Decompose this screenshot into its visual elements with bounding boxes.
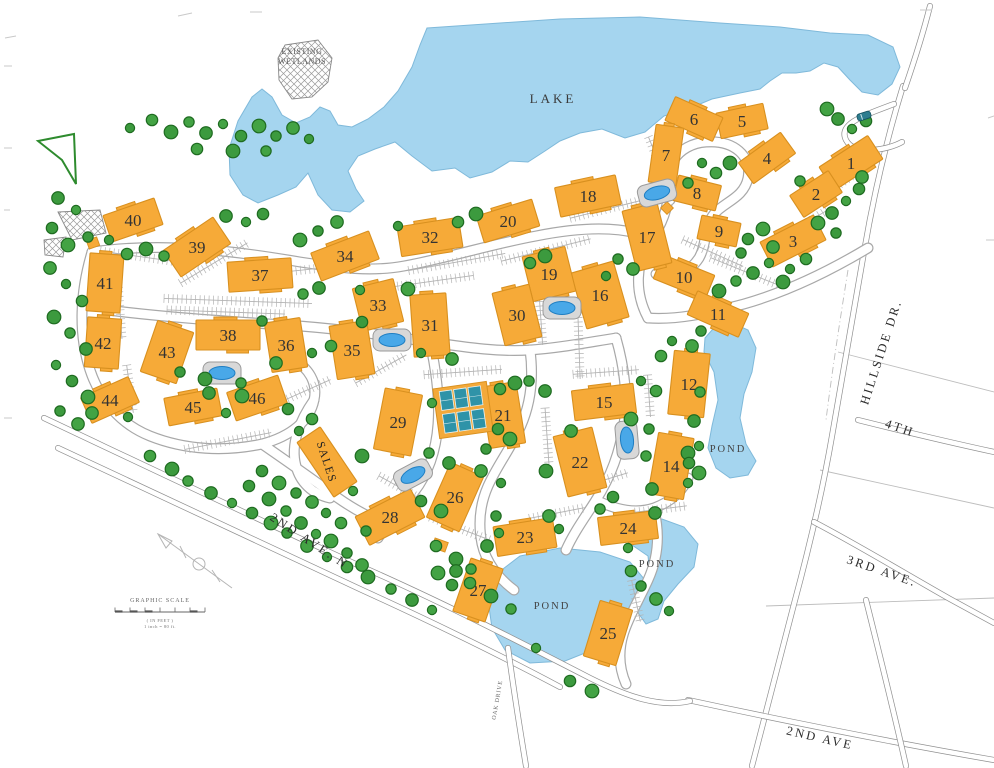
tree-symbol [650, 385, 661, 396]
tree-symbol [355, 449, 369, 463]
parking-stall-line [389, 478, 393, 486]
tree-symbol [539, 385, 552, 398]
building-39-number: 39 [189, 238, 206, 257]
tree-symbol [282, 403, 293, 414]
tree-symbol [820, 102, 834, 116]
tree-symbol [83, 232, 93, 242]
building-42: 42 [84, 314, 122, 372]
parking-stall-line [681, 235, 685, 243]
tree-symbol [356, 559, 369, 572]
parking-stall-line [643, 375, 652, 376]
building-46-number: 46 [249, 389, 266, 408]
building-31-number: 31 [422, 316, 439, 335]
building-20-number: 20 [500, 212, 517, 231]
tree-symbol [261, 146, 271, 156]
pond-label-big: POND [534, 601, 571, 612]
north-arrow-needle [158, 534, 232, 588]
tree-symbol [235, 389, 249, 403]
tree-symbol [494, 528, 503, 537]
parking-stall-line [442, 369, 443, 378]
tree-symbol [361, 526, 371, 536]
tree-symbol [246, 507, 257, 518]
tree-symbol [841, 196, 850, 205]
scan-artifact-mark [178, 13, 192, 16]
boundary-flag-marker [38, 134, 76, 184]
tree-symbol [294, 426, 303, 435]
tree-symbol [624, 412, 638, 426]
swimming-pool [373, 329, 411, 351]
tree-symbol [165, 462, 179, 476]
tree-symbol [262, 492, 276, 506]
parking-stall-line [377, 366, 381, 374]
site-plan-map: 1234567891011121415161718192021222324252… [0, 0, 994, 768]
tree-symbol [694, 441, 703, 450]
building-38-number: 38 [220, 326, 237, 345]
parking-stall-line [577, 369, 578, 378]
parking-stall-line [689, 239, 693, 247]
tree-symbol [811, 216, 825, 230]
parking-stall-line [178, 279, 183, 287]
tree-symbol [623, 543, 632, 552]
parking-stall-line [290, 393, 294, 401]
tree-symbol [306, 496, 319, 509]
tree-symbol [257, 316, 267, 326]
building-18-number: 18 [580, 187, 597, 206]
tree-symbol [667, 336, 676, 345]
tree-symbol [200, 127, 213, 140]
tree-symbol [683, 178, 693, 188]
parking-stall-line [217, 256, 222, 264]
building-33-number: 33 [370, 296, 387, 315]
tree-symbol [241, 217, 250, 226]
parking-stall-line [487, 366, 488, 375]
building-17-number: 17 [639, 228, 657, 247]
parking-stall-line [469, 367, 470, 376]
tree-symbol [686, 340, 699, 353]
tree-symbol [416, 348, 425, 357]
scale-bar-block [190, 610, 198, 612]
tree-symbol [644, 424, 654, 434]
tree-symbol [424, 448, 434, 458]
tree-symbol [139, 242, 153, 256]
building-16-number: 16 [592, 286, 609, 305]
parking-stall-line [821, 209, 826, 217]
tree-symbol [710, 167, 721, 178]
pool-water [379, 334, 405, 347]
building-44-number: 44 [102, 391, 120, 410]
road-label-oak-drive: OAK DRIVE [492, 680, 505, 720]
parking-row [164, 294, 312, 308]
tree-symbol [508, 376, 522, 390]
building-34: 34 [310, 228, 381, 284]
parking-stall-line [685, 237, 689, 245]
parking-stall-line [377, 472, 381, 480]
tree-symbol [554, 524, 563, 533]
parking-stall-line [478, 366, 479, 375]
tree-symbol [144, 450, 155, 461]
tree-symbol [847, 124, 856, 133]
parking-stall-line [460, 368, 461, 377]
tree-symbol [450, 565, 463, 578]
tree-symbol [272, 476, 286, 490]
tree-symbol [692, 466, 706, 480]
building-31: 31 [410, 290, 451, 360]
tree-symbol [46, 222, 57, 233]
tree-symbol [71, 205, 80, 214]
building-10-number: 10 [676, 268, 693, 287]
building-22-number: 22 [572, 453, 589, 472]
building-34-number: 34 [337, 247, 355, 266]
building-23-number: 23 [517, 528, 534, 547]
scale-bar-block [130, 610, 138, 612]
tree-symbol [175, 367, 185, 377]
parking-stall-line [613, 367, 614, 376]
parking-stall-line [636, 365, 637, 374]
building-25-number: 25 [600, 624, 617, 643]
parking-stall-line [182, 277, 187, 285]
tree-symbol [226, 144, 240, 158]
building-45-number: 45 [185, 398, 202, 417]
tree-symbol [481, 444, 491, 454]
tree-symbol [44, 262, 57, 275]
parking-stall-line [542, 435, 551, 436]
parking-stall-line [646, 415, 655, 416]
tree-symbol [492, 423, 503, 434]
parking-stall-line [401, 353, 405, 361]
parking-stall-line [428, 370, 429, 379]
tree-symbol [183, 476, 193, 486]
building-18: 18 [554, 172, 622, 220]
tree-symbol [198, 372, 212, 386]
tree-symbol [538, 249, 552, 263]
parking-stall-line [544, 453, 553, 454]
parking-stall-line [190, 272, 195, 280]
parking-aisle-line [279, 380, 330, 403]
parking-stall-line [600, 368, 601, 377]
tree-symbol [146, 114, 157, 125]
building-30-number: 30 [509, 306, 526, 325]
parking-stall-line [381, 364, 385, 372]
tree-symbol [832, 113, 845, 126]
tree-symbol [524, 257, 535, 268]
tree-symbol [494, 383, 505, 394]
parking-stall-line [198, 268, 203, 276]
tree-symbol [688, 415, 701, 428]
building-8-number: 8 [693, 184, 702, 203]
tree-symbol [496, 478, 505, 487]
parking-stall-line [323, 378, 327, 386]
tree-symbol [406, 594, 419, 607]
parking-stall-line [604, 368, 605, 377]
tree-symbol [257, 208, 268, 219]
wetlands-label-line1: EXISTING [282, 47, 323, 56]
parking-stall-line [693, 241, 697, 249]
tree-symbol [52, 192, 65, 205]
tree-symbol [304, 134, 313, 143]
tree-symbol [427, 605, 436, 614]
tree-symbol [415, 495, 426, 506]
tree-symbol [61, 238, 75, 252]
tree-symbol [348, 486, 357, 495]
scan-artifact-mark [5, 36, 16, 38]
building-14-number: 14 [663, 457, 681, 476]
parking-stall-line [543, 444, 552, 445]
tree-symbol [86, 407, 99, 420]
tree-symbol [856, 171, 869, 184]
tree-symbol [220, 210, 233, 223]
tree-symbol [613, 254, 623, 264]
tree-symbol [321, 508, 330, 517]
tree-symbol [625, 565, 636, 576]
tennis-courts [433, 381, 493, 438]
pool-water [549, 302, 575, 315]
tree-symbol [331, 216, 344, 229]
tree-symbol [164, 125, 178, 139]
lake-label: LAKE [530, 91, 577, 106]
building-39: 39 [162, 214, 233, 279]
parking-stall-line [541, 412, 550, 413]
building-15-number: 15 [596, 393, 613, 412]
parking-stall-line [213, 258, 218, 266]
parking-stall-line [645, 402, 654, 403]
parking-row [541, 408, 554, 464]
tree-symbol [826, 207, 839, 220]
scale-feet-label: ( IN FEET ) [147, 618, 174, 623]
tree-symbol [218, 119, 227, 128]
building-11-number: 11 [710, 305, 726, 324]
tree-symbol [355, 285, 364, 294]
scan-artifact-mark [988, 116, 994, 118]
tree-symbol [481, 540, 494, 553]
tree-symbol [731, 276, 741, 286]
tree-symbol [683, 457, 694, 468]
tree-symbol [235, 130, 246, 141]
street-surface [688, 700, 994, 760]
north-arrow-feather [180, 546, 186, 558]
tree-symbol [742, 233, 753, 244]
tree-symbol [287, 122, 300, 135]
tree-symbol [767, 241, 780, 254]
tree-symbol [776, 275, 790, 289]
tree-symbol [51, 360, 60, 369]
building-26-number: 26 [447, 488, 464, 507]
building-43: 43 [139, 317, 194, 386]
tree-symbol [795, 176, 805, 186]
tree-symbol [697, 158, 706, 167]
parking-stall-line [645, 397, 654, 398]
parking-stall-line [385, 476, 389, 484]
parking-stall-line [389, 359, 393, 367]
tree-symbol [123, 412, 132, 421]
tree-symbol [475, 465, 488, 478]
building-3-number: 3 [789, 232, 798, 251]
building-36-number: 36 [278, 336, 295, 355]
tree-symbol [271, 131, 281, 141]
parking-stall-line [645, 406, 654, 407]
tree-symbol [76, 295, 87, 306]
tree-symbol [313, 282, 326, 295]
parking-stall-line [446, 369, 447, 378]
parking-stall-line [482, 366, 483, 375]
tree-symbol [427, 398, 436, 407]
parking-aisle-line [545, 408, 549, 464]
parking-stall-line [538, 342, 547, 343]
north-arrow-feather [212, 570, 220, 582]
tree-symbol [252, 119, 266, 133]
parking-stall-line [294, 391, 298, 399]
parking-stall-line [544, 462, 553, 463]
building-22: 22 [552, 424, 607, 500]
tree-symbol [650, 593, 663, 606]
pond-label-small: POND [639, 559, 676, 570]
tree-symbol [293, 233, 307, 247]
scale-title: GRAPHIC SCALE [130, 598, 190, 604]
building-19-number: 19 [541, 265, 558, 284]
parcel-line [820, 470, 994, 508]
tree-symbol [747, 267, 760, 280]
north-arrow [158, 534, 232, 588]
parking-stall-line [500, 365, 501, 374]
parking-stall-line [541, 408, 550, 409]
tree-symbol [785, 264, 794, 273]
tree-symbol [431, 566, 445, 580]
tree-symbol [446, 353, 459, 366]
tree-symbol [800, 253, 811, 264]
parking-stall-line [646, 411, 655, 412]
building-35-number: 35 [344, 341, 361, 360]
parking-stall-line [186, 275, 191, 283]
parking-stall-line [595, 368, 596, 377]
parking-stall-line [542, 430, 551, 431]
parking-stall-line [541, 421, 550, 422]
building-12: 12 [667, 347, 710, 420]
scale-ratio-label: 1 inch = 80 ft. [144, 624, 176, 629]
parking-stall-line [244, 240, 249, 248]
pool-water [209, 367, 235, 380]
street-surface [858, 420, 994, 452]
tree-symbol [539, 464, 553, 478]
tree-symbol [449, 552, 463, 566]
building-37-number: 37 [252, 266, 270, 285]
parking-stall-line [298, 389, 302, 397]
tree-symbol [649, 507, 662, 520]
parking-stall-line [541, 417, 550, 418]
tree-symbol [401, 282, 415, 296]
building-5: 5 [715, 100, 769, 141]
tree-symbol [61, 279, 70, 288]
tree-symbol [853, 183, 864, 194]
tree-symbol [221, 408, 230, 417]
parking-stall-line [353, 379, 357, 387]
pond-label-right: POND [710, 444, 747, 455]
tree-symbol [664, 606, 673, 615]
tree-symbol [655, 350, 666, 361]
tree-symbol [683, 478, 692, 487]
road-label-hillside-dr: HILLSIDE DR. [857, 298, 904, 407]
parking-stall-line [491, 366, 492, 375]
parking-stall-line [201, 265, 206, 273]
tree-symbol [831, 228, 841, 238]
tree-symbol [506, 604, 516, 614]
scale-bar-block [145, 610, 153, 612]
tree-symbol [464, 577, 475, 588]
tree-symbol [227, 498, 236, 507]
tree-symbol [243, 480, 254, 491]
tree-symbol [636, 581, 646, 591]
tree-symbol [81, 390, 95, 404]
tree-symbol [764, 258, 773, 267]
building-21-number: 21 [495, 406, 512, 425]
swimming-pool [614, 420, 639, 460]
swimming-pool [543, 297, 581, 319]
tree-symbol [601, 271, 610, 280]
parking-stall-line [609, 367, 610, 376]
tree-symbol [565, 425, 578, 438]
tree-symbol [191, 143, 202, 154]
tree-symbol [325, 340, 336, 351]
scale-bar-block [115, 610, 123, 612]
tree-symbol [531, 643, 540, 652]
building-1-number: 1 [847, 154, 856, 173]
building-41-number: 41 [97, 274, 114, 293]
building-32-number: 32 [422, 228, 439, 247]
building-24-number: 24 [620, 519, 638, 538]
wetland-area-2 [58, 210, 106, 240]
tree-symbol [313, 226, 323, 236]
parking-stall-line [473, 367, 474, 376]
tree-symbol [356, 316, 367, 327]
tree-symbol [205, 487, 218, 500]
tree-symbol [47, 310, 61, 324]
parking-stall-line [582, 369, 583, 378]
building-29-number: 29 [390, 413, 407, 432]
tree-symbol [65, 328, 75, 338]
parking-stall-line [544, 457, 553, 458]
parking-stall-line [496, 365, 497, 374]
tree-symbol [636, 376, 645, 385]
tree-symbol [184, 117, 194, 127]
tree-symbol [585, 684, 599, 698]
building-38: 38 [196, 317, 260, 353]
tree-symbol [736, 248, 746, 258]
tree-symbol [80, 343, 93, 356]
tree-symbol [55, 406, 65, 416]
building-5-number: 5 [738, 112, 747, 131]
tree-symbol [466, 564, 476, 574]
tree-symbol [543, 510, 556, 523]
parking-stall-line [591, 369, 592, 378]
tree-symbol [646, 483, 659, 496]
tree-symbol [335, 517, 346, 528]
tree-symbol [756, 222, 770, 236]
parcel-line [838, 352, 994, 392]
parking-stall-line [451, 368, 452, 377]
parking-stall-line [543, 448, 552, 449]
tree-symbol [236, 378, 246, 388]
tree-symbol [434, 504, 448, 518]
tree-symbol [595, 504, 605, 514]
parking-stall-line [543, 439, 552, 440]
building-43-number: 43 [159, 343, 176, 362]
tree-symbol [393, 221, 402, 230]
tree-symbol [256, 465, 267, 476]
tree-symbol [298, 289, 308, 299]
parking-stall-line [455, 368, 456, 377]
tree-symbol [641, 451, 651, 461]
tree-symbol [723, 156, 737, 170]
tree-symbol [524, 376, 534, 386]
tree-symbol [695, 387, 705, 397]
